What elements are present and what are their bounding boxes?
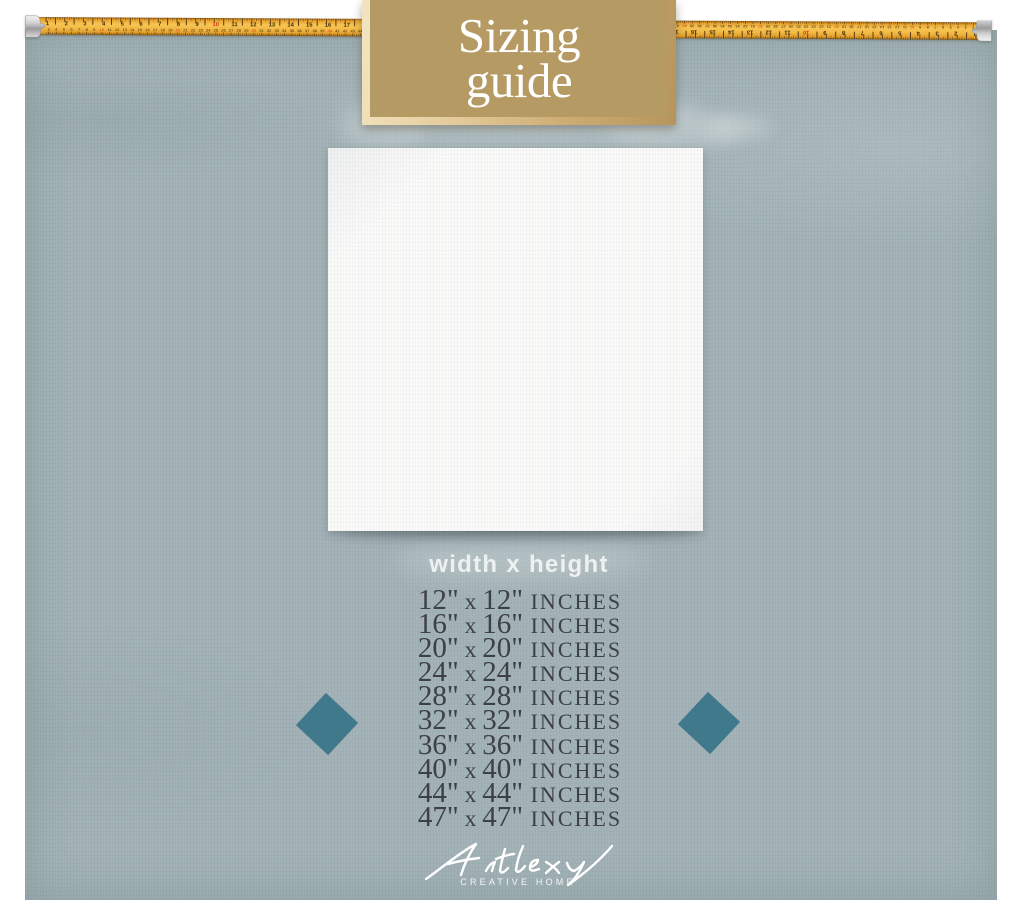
svg-text:CREATIVE HOME: CREATIVE HOME — [460, 877, 575, 887]
